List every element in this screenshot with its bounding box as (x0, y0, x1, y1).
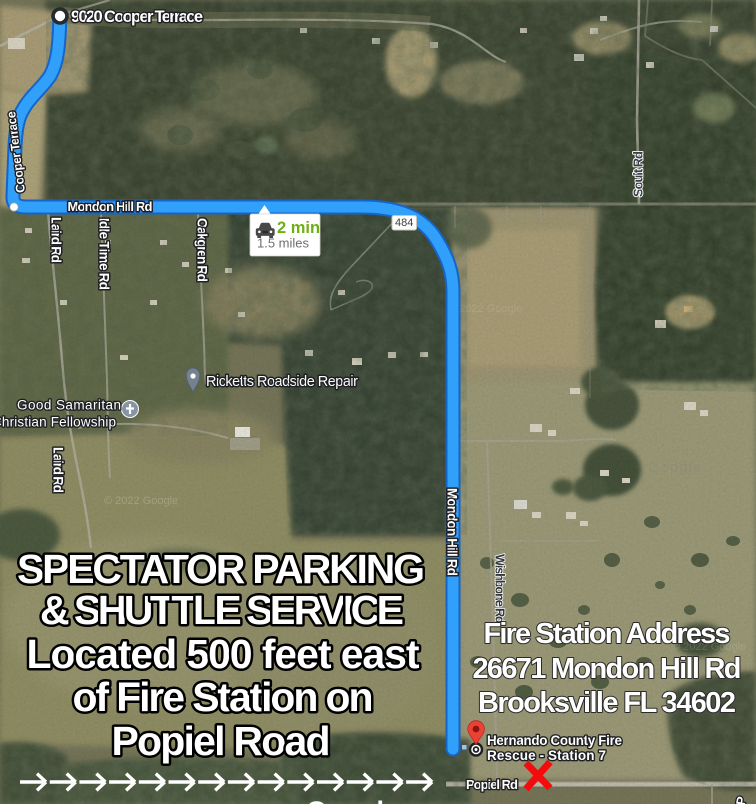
svg-text:Popiel Rd: Popiel Rd (466, 777, 518, 792)
svg-text:1.5 miles: 1.5 miles (257, 236, 310, 251)
svg-text:SPECTATOR PARKING: SPECTATOR PARKING (17, 546, 425, 592)
svg-text:Good Samaritan: Good Samaritan (17, 398, 121, 413)
svg-text:Brooksville FL 34602: Brooksville FL 34602 (478, 687, 736, 719)
svg-text:9020 Cooper Terrace: 9020 Cooper Terrace (71, 8, 203, 26)
svg-text:Oakgren Rd: Oakgren Rd (195, 218, 210, 282)
svg-text:Christian Fellowship: Christian Fellowship (0, 415, 116, 430)
svg-text:Hernando County Fire: Hernando County Fire (487, 733, 622, 748)
svg-text:484: 484 (395, 217, 413, 229)
svg-text:2 min: 2 min (277, 219, 320, 237)
svg-text:Mondon Hill Rd: Mondon Hill Rd (68, 199, 153, 214)
svg-text:Popiel Road: Popiel Road (112, 718, 331, 764)
svg-text:Wishbone Rd: Wishbone Rd (493, 554, 508, 624)
svg-text:Soult Rd: Soult Rd (631, 151, 646, 197)
svg-text:Google: Google (306, 796, 399, 804)
svg-text:Fire Station Address: Fire Station Address (484, 618, 731, 650)
svg-text:Idle Time Rd: Idle Time Rd (97, 218, 112, 290)
svg-text:of Fire Station on: of Fire Station on (73, 674, 374, 720)
svg-text:Laird Rd: Laird Rd (49, 217, 64, 263)
svg-text:Mondon Hill Rd: Mondon Hill Rd (445, 488, 460, 576)
svg-text:Ricketts Roadside Repair: Ricketts Roadside Repair (206, 374, 358, 390)
svg-text:Laird Rd: Laird Rd (51, 447, 66, 493)
svg-text:26671 Mondon Hill Rd: 26671 Mondon Hill Rd (473, 653, 742, 685)
svg-text:Located 500 feet east: Located 500 feet east (27, 631, 420, 677)
svg-text:& SHUTTLE SERVICE: & SHUTTLE SERVICE (40, 587, 404, 633)
